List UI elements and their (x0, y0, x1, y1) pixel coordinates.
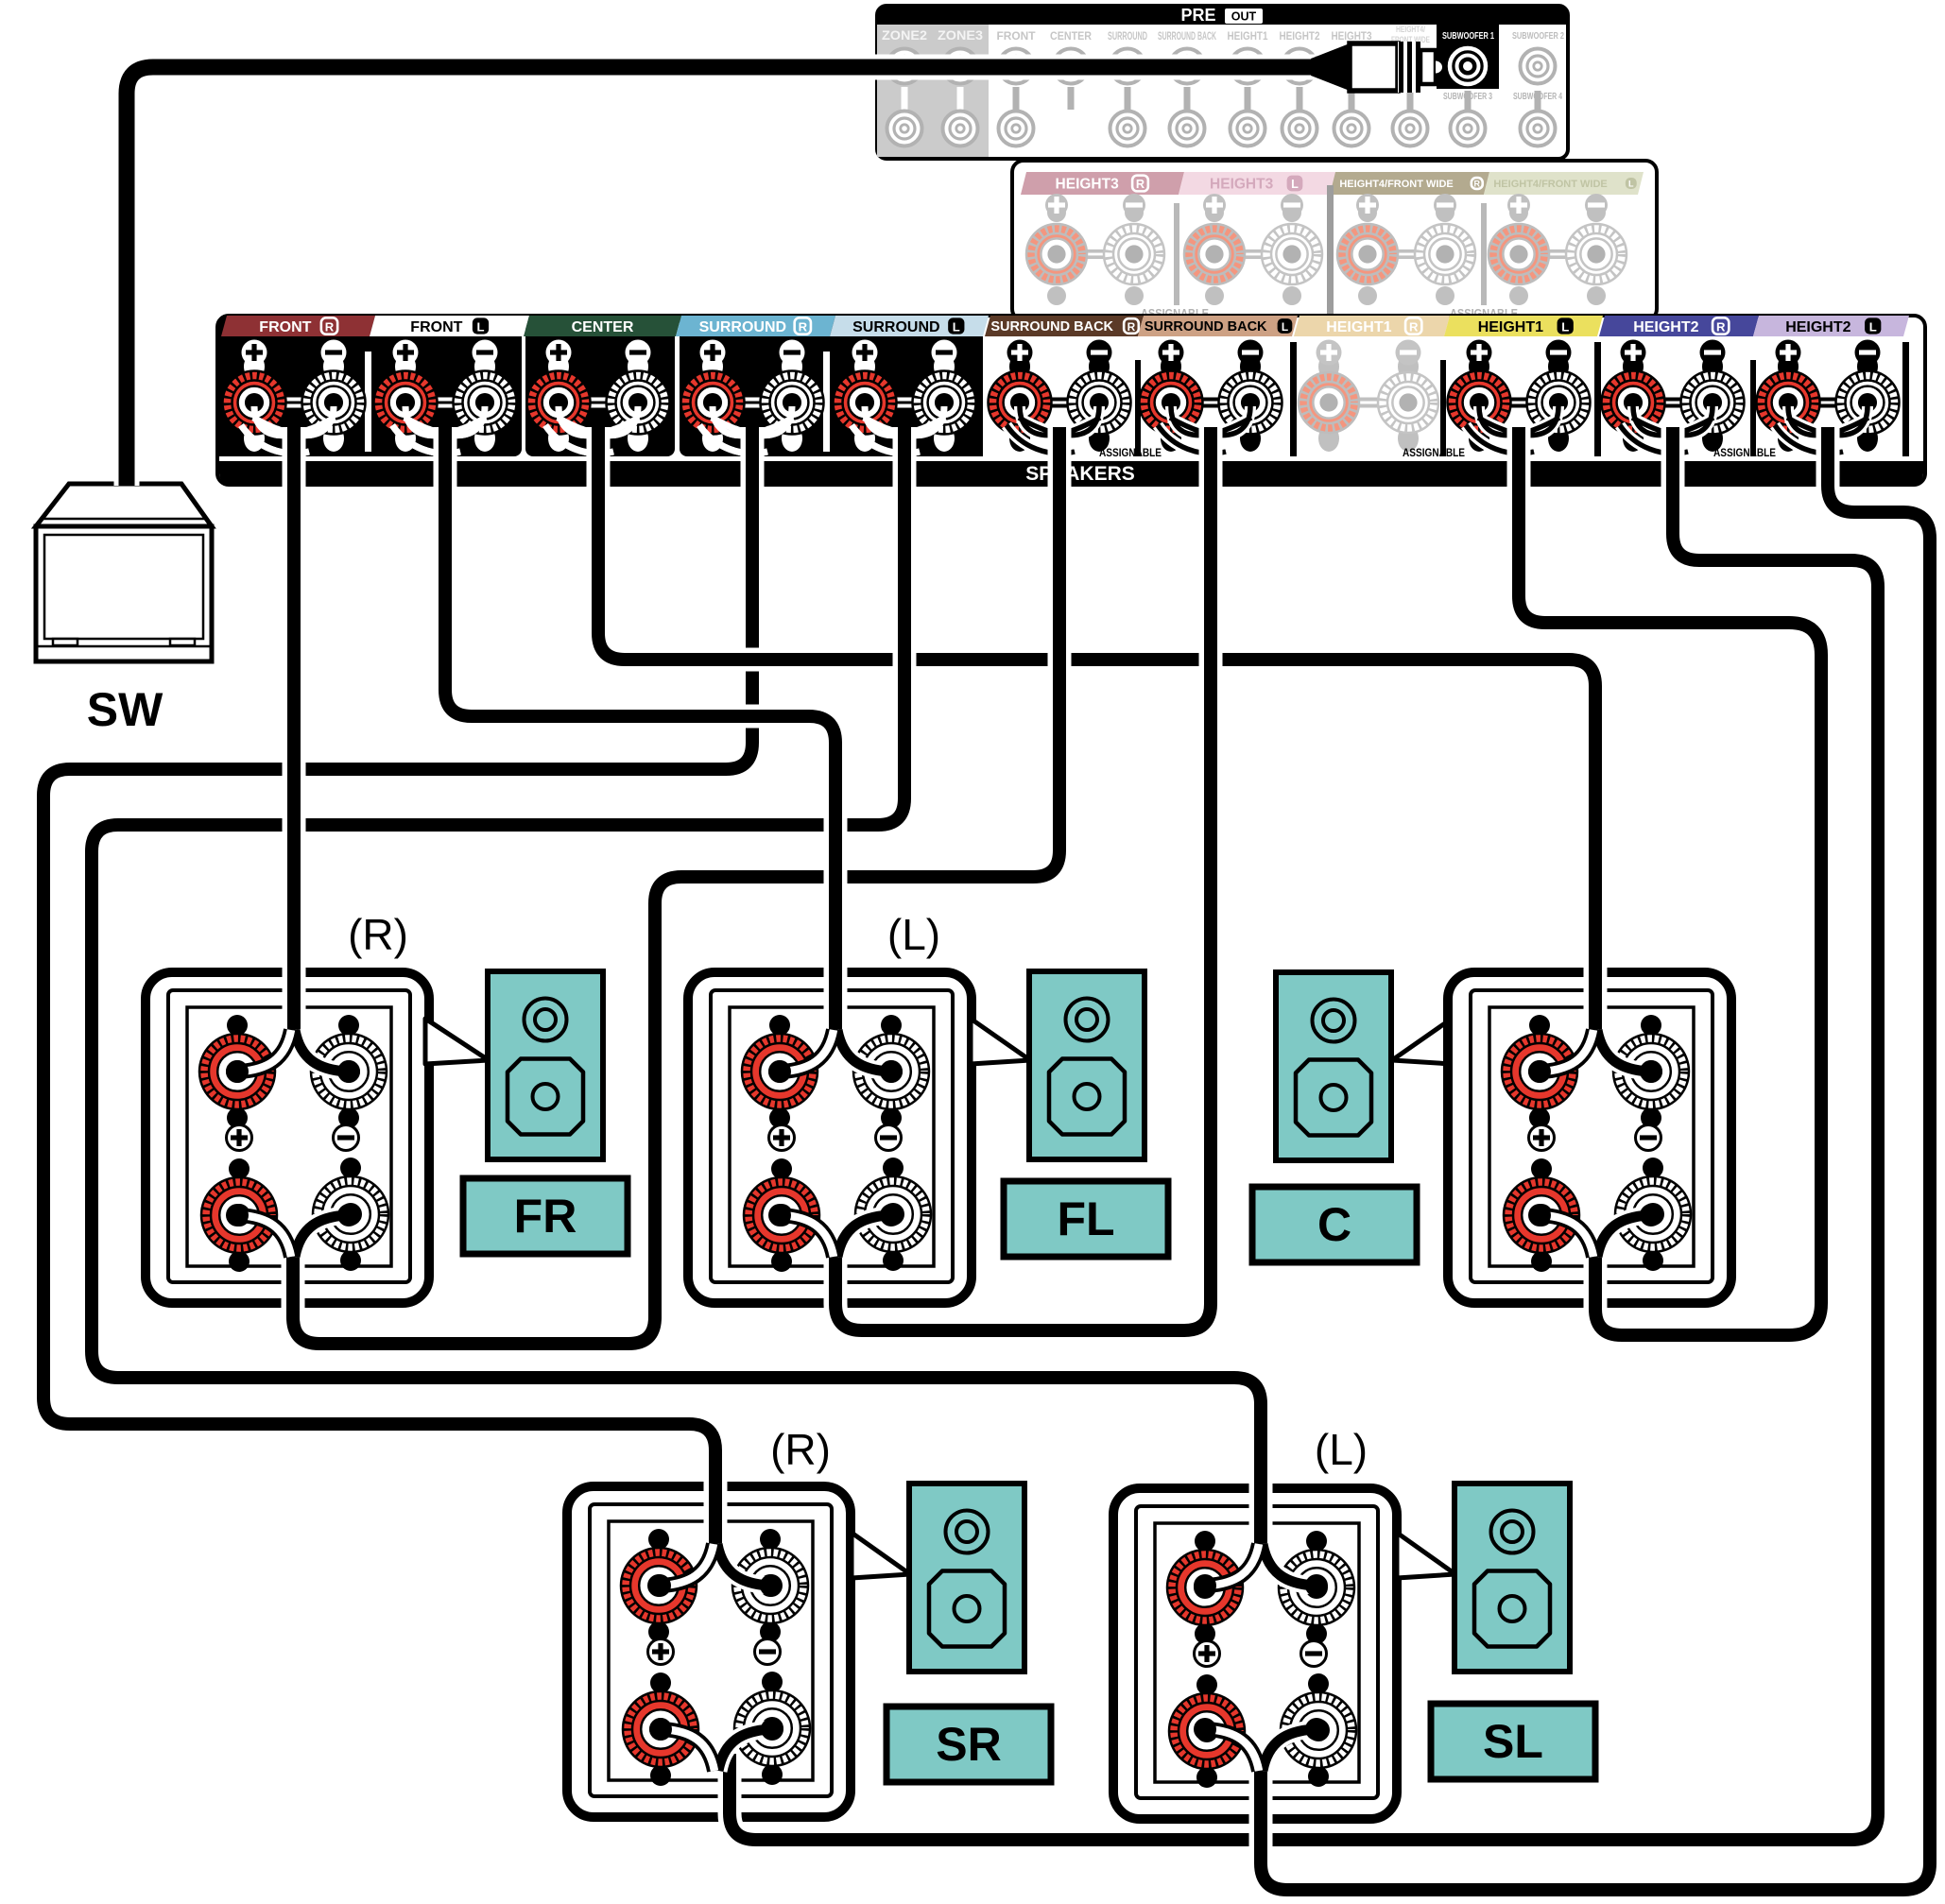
svg-text:FRONT: FRONT (997, 29, 1037, 43)
svg-text:HEIGHT1: HEIGHT1 (1326, 319, 1391, 335)
svg-text:HEIGHT4/FRONT WIDE: HEIGHT4/FRONT WIDE (1493, 179, 1607, 190)
svg-text:L: L (1869, 319, 1877, 334)
svg-text:PRE: PRE (1180, 6, 1215, 25)
svg-text:R: R (1716, 319, 1726, 334)
svg-text:SURROUND: SURROUND (699, 319, 786, 335)
svg-text:C: C (1317, 1198, 1351, 1251)
svg-text:SPEAKERS: SPEAKERS (1025, 463, 1135, 485)
svg-text:OUT: OUT (1231, 10, 1257, 24)
svg-text:SUBWOOFER 1: SUBWOOFER 1 (1442, 30, 1494, 42)
svg-text:(L): (L) (1315, 1425, 1368, 1474)
svg-text:CENTER: CENTER (1050, 29, 1092, 43)
svg-text:HEIGHT3: HEIGHT3 (1210, 177, 1274, 193)
svg-text:FR: FR (514, 1190, 577, 1243)
svg-text:L: L (953, 319, 960, 334)
svg-text:CENTER: CENTER (572, 319, 634, 335)
svg-text:ASSIGNABLE: ASSIGNABLE (1099, 446, 1162, 459)
svg-text:HEIGHT2: HEIGHT2 (1785, 319, 1850, 335)
svg-text:HEIGHT3: HEIGHT3 (1056, 177, 1120, 193)
svg-text:HEIGHT3: HEIGHT3 (1332, 29, 1372, 43)
svg-text:R: R (1474, 180, 1481, 189)
svg-text:ZONE2: ZONE2 (882, 28, 927, 43)
svg-text:R: R (1409, 319, 1419, 334)
svg-text:FL: FL (1057, 1192, 1114, 1245)
svg-text:L: L (1291, 177, 1299, 191)
svg-text:SURROUND BACK: SURROUND BACK (1158, 29, 1216, 43)
svg-text:R: R (1136, 177, 1145, 191)
svg-text:HEIGHT4/FRONT WIDE: HEIGHT4/FRONT WIDE (1339, 179, 1453, 190)
svg-text:L: L (1561, 319, 1569, 334)
svg-text:SURROUND: SURROUND (1108, 29, 1147, 43)
svg-text:R: R (1127, 320, 1136, 334)
svg-text:SW: SW (87, 683, 164, 736)
svg-text:FRONT: FRONT (410, 319, 462, 335)
svg-text:SURROUND BACK: SURROUND BACK (1145, 319, 1267, 334)
svg-text:HEIGHT1: HEIGHT1 (1228, 29, 1268, 43)
svg-text:SL: SL (1483, 1715, 1543, 1768)
svg-text:ASSIGNABLE: ASSIGNABLE (1403, 446, 1465, 459)
svg-text:ZONE3: ZONE3 (938, 28, 984, 43)
svg-text:SR: SR (936, 1718, 1001, 1771)
svg-text:(R): (R) (770, 1425, 831, 1474)
svg-text:HEIGHT1: HEIGHT1 (1478, 319, 1543, 335)
svg-text:R: R (799, 319, 808, 334)
svg-text:R: R (325, 319, 335, 334)
svg-text:FRONT: FRONT (259, 319, 311, 335)
svg-text:SUBWOOFER 2: SUBWOOFER 2 (1512, 30, 1564, 42)
svg-text:(R): (R) (348, 910, 408, 959)
svg-text:HEIGHT4/: HEIGHT4/ (1396, 25, 1425, 35)
svg-text:SURROUND BACK: SURROUND BACK (990, 319, 1113, 334)
svg-text:ASSIGNABLE: ASSIGNABLE (1713, 446, 1776, 459)
svg-text:HEIGHT2: HEIGHT2 (1280, 29, 1320, 43)
svg-text:L: L (1282, 320, 1288, 334)
svg-text:(L): (L) (887, 910, 940, 959)
svg-text:L: L (476, 319, 484, 334)
svg-text:HEIGHT2: HEIGHT2 (1633, 319, 1698, 335)
svg-text:SURROUND: SURROUND (852, 319, 939, 335)
svg-text:L: L (1628, 180, 1634, 189)
